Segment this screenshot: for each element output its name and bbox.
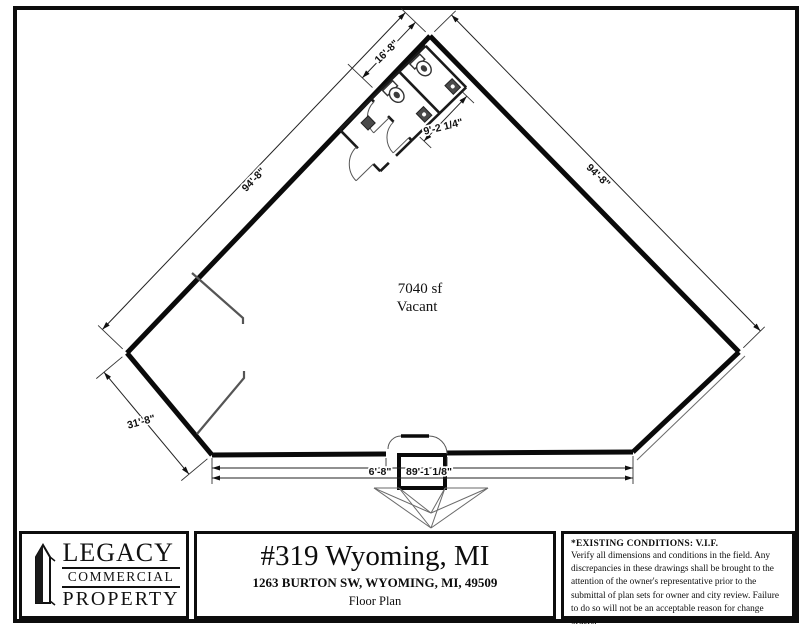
logo-line-commercial: COMMERCIAL [62, 569, 179, 588]
drawing-sheet: 16'-8" 94'-8" 94'-8" 9'-2 1/4" 31'-8" 6'… [0, 0, 811, 630]
restroom-block [323, 46, 467, 188]
entry-canopy [374, 488, 488, 528]
extension-lines [96, 8, 764, 484]
dim-label-left-wall: 94'-8" [240, 165, 268, 194]
logo-box: LEGACY COMMERCIAL PROPERTY [19, 531, 189, 619]
interior-partition-stubs [192, 273, 244, 434]
exterior-walls [127, 36, 739, 455]
project-title: #319 Wyoming, MI [261, 541, 490, 573]
dim-label-lower-left-wall: 31'-8" [126, 413, 157, 432]
area-label-sf: 7040 sf [398, 281, 443, 297]
water-heater [361, 116, 375, 130]
dim-label-restroom: 9'-2 1/4" [422, 116, 464, 137]
site-edge-line [637, 356, 745, 460]
drawing-name: Floor Plan [349, 594, 401, 609]
sink-2 [416, 107, 432, 123]
legacy-tower-icon [28, 541, 58, 609]
project-address: 1263 BURTON SW, WYOMING, MI, 49509 [253, 575, 498, 591]
notes-heading: *EXISTING CONDITIONS: V.I.F. [571, 539, 785, 549]
entrance-vestibule [388, 436, 447, 488]
area-label-vacant: Vacant [397, 299, 439, 315]
sink-1 [445, 79, 461, 95]
project-title-box: #319 Wyoming, MI 1263 BURTON SW, WYOMING… [194, 531, 556, 619]
dim-label-bottom-wall: 89'-1 1/8" [406, 466, 452, 478]
title-block: LEGACY COMMERCIAL PROPERTY #319 Wyoming,… [19, 531, 795, 619]
dimension-lines [102, 13, 760, 479]
notes-body: Verify all dimensions and conditions in … [571, 550, 785, 629]
restroom-doors [325, 102, 409, 185]
notes-box: *EXISTING CONDITIONS: V.I.F. Verify all … [561, 531, 795, 619]
logo-line-legacy: LEGACY [62, 540, 179, 569]
dim-label-entry: 6'-8" [369, 466, 392, 478]
logo-line-property: PROPERTY [62, 588, 179, 610]
